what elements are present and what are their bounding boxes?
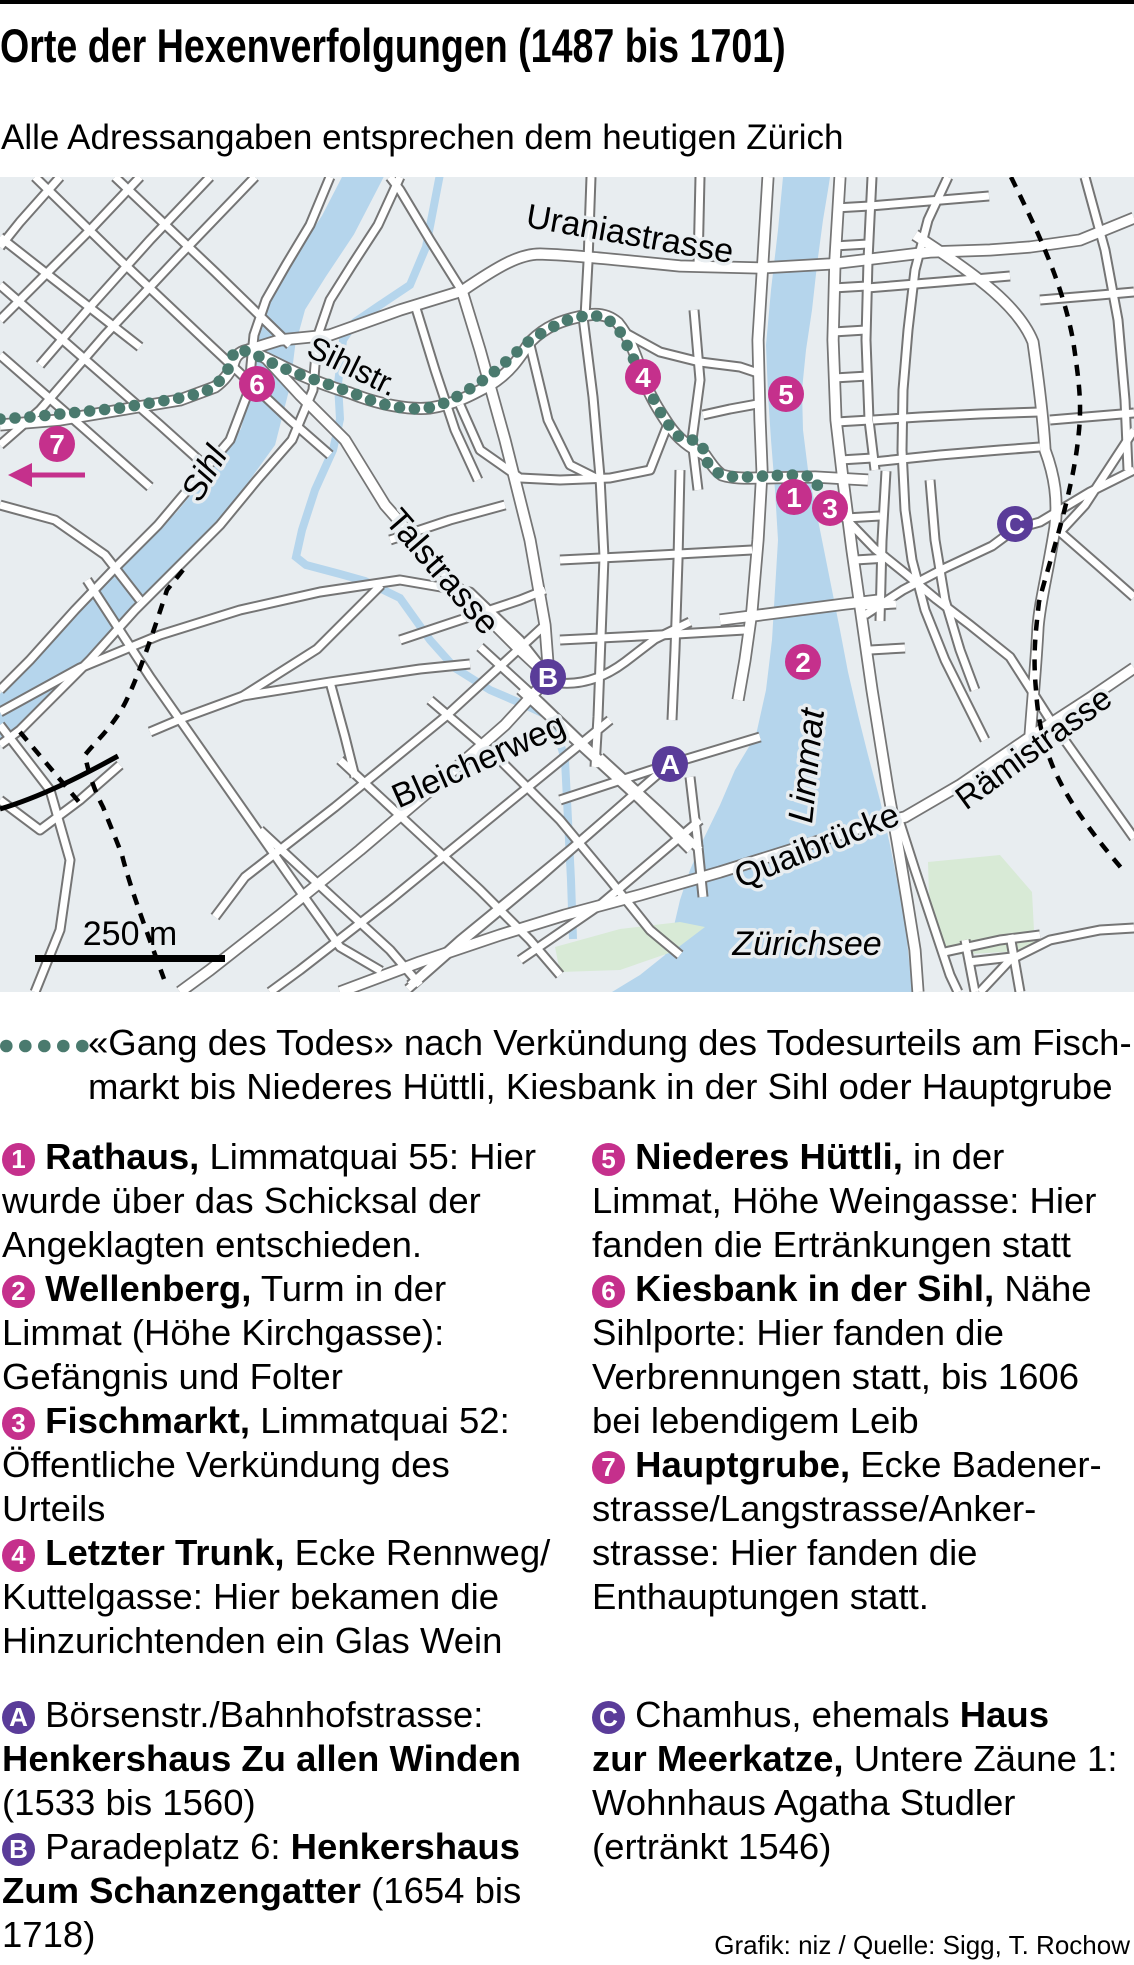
svg-text:A: A [660,749,680,780]
svg-text:6: 6 [249,369,265,400]
svg-text:C: C [1005,509,1025,540]
svg-text:B: B [538,662,558,693]
svg-text:3: 3 [822,493,838,524]
svg-text:250 m: 250 m [83,915,178,953]
svg-text:4: 4 [635,362,651,393]
svg-text:1: 1 [786,482,802,513]
svg-text:Zürichsee: Zürichsee [731,925,881,963]
svg-text:5: 5 [778,379,794,410]
svg-text:7: 7 [49,429,65,460]
svg-text:2: 2 [795,647,811,678]
